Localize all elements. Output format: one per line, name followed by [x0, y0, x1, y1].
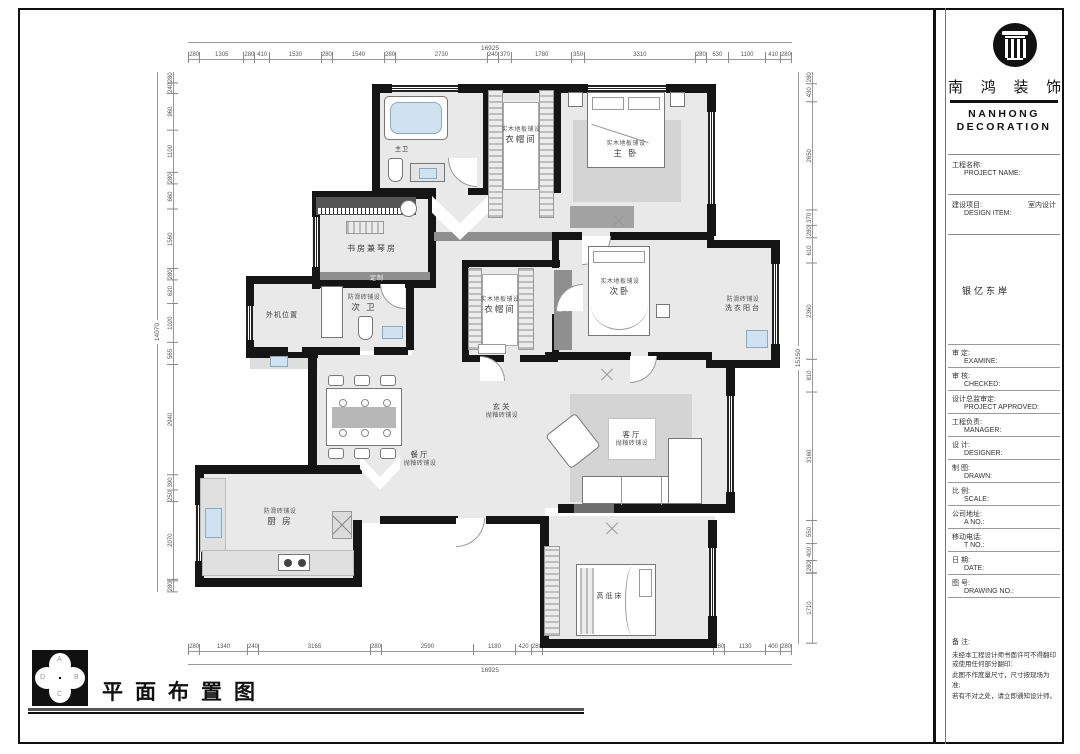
compass-letter-n: A	[57, 656, 62, 663]
light-symbol	[600, 368, 614, 382]
wall-segment	[648, 352, 712, 360]
right-overall-dimension: 15150	[793, 72, 803, 644]
divider	[948, 194, 1060, 195]
wardrobe-hatch	[468, 268, 482, 350]
top-overall-dimension: 16925	[188, 36, 792, 46]
drawing-sheet: 16925 2801305280410153028015402802730240…	[0, 0, 1080, 754]
design-item-label-cn: 建设项目: 室内设计	[952, 200, 1056, 210]
title-block-field-row: 图 号: DRAWING NO.:	[948, 575, 1060, 598]
plate	[361, 399, 369, 407]
logo-column-base	[1007, 58, 1023, 60]
bottom-overall-dimension: 16925	[188, 658, 792, 668]
bed-fold-line	[591, 305, 648, 330]
design-item-label-en: DESIGN ITEM:	[952, 210, 1056, 217]
dining-chair	[328, 448, 344, 459]
logo-column-shaft	[1005, 39, 1026, 58]
nightstand	[568, 92, 583, 107]
wall-segment	[540, 639, 717, 648]
window	[392, 85, 458, 92]
wall-segment	[406, 288, 414, 350]
wall-segment	[380, 516, 458, 524]
custom-cabinet	[434, 232, 552, 241]
wall-segment	[707, 240, 780, 248]
wardrobe-hatch	[488, 90, 503, 218]
design-item-value: 室内设计	[1028, 200, 1056, 210]
master-bed	[587, 92, 665, 168]
round-stool	[400, 200, 417, 217]
floor-ac-unit	[250, 283, 315, 353]
window	[708, 112, 715, 204]
company-rule	[950, 100, 1058, 103]
door-arc	[456, 518, 485, 547]
window	[772, 264, 779, 344]
plate	[383, 399, 391, 407]
remarks-line: 此图不作度量尺寸，尺寸按现场为准;	[952, 671, 1056, 691]
window	[709, 548, 716, 616]
title-block-field-row: 审 核: CHECKED:	[948, 368, 1060, 391]
pillow	[592, 97, 624, 110]
wall-segment	[554, 88, 561, 193]
wall-segment	[462, 260, 560, 267]
cloakroom1-island	[503, 102, 539, 190]
remarks-line: 未经本工程设计师书面许可不得翻印或使用任何部分翻印;	[952, 651, 1056, 671]
title-block-field-row: 日 期: DATE:	[948, 552, 1060, 575]
wall-segment	[520, 355, 558, 362]
dining-table	[326, 388, 402, 446]
wall-segment	[353, 520, 362, 587]
wall-segment	[195, 465, 362, 474]
company-name-en2: DECORATION	[948, 121, 1060, 133]
wall-segment	[708, 616, 717, 648]
logo-column-capital2	[1005, 36, 1025, 38]
wall-segment	[610, 232, 714, 240]
ac-outdoor-unit	[270, 356, 288, 367]
nightstand	[670, 92, 685, 107]
title-block: 南 鸿 装 饰 NANHONG DECORATION 工程名称: PROJECT…	[948, 8, 1060, 744]
burner	[284, 559, 292, 567]
remarks-block: 备 注: 未经本工程设计师书面许可不得翻印或使用任何部分翻印;此图不作度量尺寸，…	[952, 638, 1056, 701]
compass-center-square	[49, 667, 71, 689]
toilet	[388, 158, 403, 182]
light-symbol	[605, 522, 619, 536]
plate	[339, 429, 347, 437]
bed2	[588, 246, 650, 336]
project-name-label-en: PROJECT NAME:	[952, 170, 1021, 177]
table-runner	[332, 407, 396, 428]
wall-segment	[372, 88, 380, 193]
drawing-title-underline	[28, 708, 584, 714]
wardrobe-hatch	[544, 546, 560, 636]
wall-segment	[246, 276, 254, 306]
piano-bench	[346, 221, 384, 234]
light-symbol	[612, 214, 626, 228]
wall-segment	[708, 520, 717, 548]
sink	[419, 168, 437, 179]
shoe-bench	[478, 344, 506, 354]
title-block-separator	[933, 8, 936, 744]
wall-segment	[374, 347, 408, 355]
bed-fold-line	[591, 124, 648, 143]
wardrobe-hatch	[539, 90, 554, 218]
wall-segment	[195, 578, 362, 587]
cloakroom2-island	[482, 274, 518, 346]
shower	[321, 286, 343, 338]
window	[588, 85, 666, 92]
sofa-chaise	[668, 438, 702, 504]
dining-chair	[354, 375, 370, 386]
wardrobe-hatch	[518, 268, 534, 350]
project-name-field: 工程名称: PROJECT NAME:	[952, 160, 1021, 177]
divider	[948, 154, 1060, 155]
washing-machine	[746, 330, 768, 348]
wall-segment	[707, 84, 716, 112]
compass-letter-s: C	[57, 691, 62, 698]
kitchen-sink	[205, 508, 222, 538]
sofa-cushion-line	[621, 477, 622, 505]
left-overall-dimension: 14070	[152, 72, 162, 592]
wall-segment	[246, 276, 318, 284]
nightstand	[656, 304, 670, 318]
title-block-field-row: 制 图: DRAWN:	[948, 460, 1060, 483]
title-block-field-row: 设计总监审定: PROJECT APPROVED:	[948, 391, 1060, 414]
title-block-inner-line	[945, 8, 946, 744]
bunk-bed	[576, 564, 656, 636]
window	[727, 396, 734, 492]
logo-column-capital	[1002, 31, 1028, 35]
sink	[382, 326, 403, 339]
compass-icon: A B C D	[32, 650, 88, 706]
title-block-field-row: 比 例: SCALE:	[948, 483, 1060, 506]
top-dimension-chain: 2801305280410153028015402802730240370178…	[188, 52, 792, 63]
sofa-cushion-line	[661, 477, 662, 505]
right-dimension-chain: 2804302650370280610236081031605504002801…	[806, 72, 817, 644]
flue-shaft	[332, 511, 352, 539]
vanity-counter	[410, 163, 445, 182]
left-dimension-chain: 2802409601100280660156028062010205652940…	[167, 72, 178, 592]
title-block-field-row: 移动电话: T NO.:	[948, 529, 1060, 552]
project-name-label-cn: 工程名称:	[952, 160, 1021, 170]
title-block-field-row: 设 计: DESIGNER:	[948, 437, 1060, 460]
floor-plan: 16925 2801305280410153028015402802730240…	[150, 8, 830, 708]
title-block-field-row: 工程负责: MANAGER:	[948, 414, 1060, 437]
remarks-line: 若有不对之处，请立即通知设计师。	[952, 692, 1056, 702]
wall-segment	[706, 360, 780, 368]
window	[313, 217, 320, 267]
wall-segment	[468, 188, 490, 195]
compass-letter-e: B	[74, 674, 79, 681]
design-item-field: 建设项目: 室内设计 DESIGN ITEM:	[952, 200, 1056, 217]
toilet	[358, 316, 373, 340]
dining-chair	[328, 375, 344, 386]
living-tv-cabinet	[574, 504, 614, 513]
title-block-field-row: 公司地址: A NO.:	[948, 506, 1060, 529]
company-logo-icon	[993, 23, 1037, 67]
wall-segment	[486, 516, 544, 524]
title-block-field-row: 审 定: EXAMINE:	[948, 345, 1060, 368]
drawing-title: 平面布置图	[102, 676, 267, 706]
bathtub	[384, 96, 448, 140]
dining-chair	[380, 448, 396, 459]
plate	[383, 429, 391, 437]
remarks-lines: 未经本工程设计师书面许可不得翻印或使用任何部分翻印;此图不作度量尺寸，尺寸按现场…	[952, 651, 1056, 702]
wall-segment	[372, 188, 436, 195]
title-block-fields: 审 定: EXAMINE: 审 核: CHECKED: 设计总监审定: PROJ…	[948, 344, 1060, 598]
window	[246, 306, 253, 340]
wall-segment	[771, 240, 780, 264]
burner	[298, 559, 306, 567]
wall-segment	[726, 360, 735, 396]
company-name-cn: 南 鸿 装 饰	[948, 76, 1060, 97]
remarks-label: 备 注:	[952, 638, 1056, 649]
pillow	[628, 97, 660, 110]
project-title: 银亿东岸	[962, 284, 1010, 297]
wall-segment	[308, 355, 317, 470]
divider	[948, 234, 1060, 235]
room-label-living: 客厅抛釉砖铺设	[616, 430, 649, 448]
pillow	[593, 251, 645, 263]
plate	[339, 399, 347, 407]
plate	[361, 429, 369, 437]
bunk-ladder	[580, 568, 594, 634]
company-name-en1: NANHONG	[948, 108, 1060, 120]
custom-label: 定制	[362, 273, 392, 282]
bathtub-basin	[390, 102, 442, 134]
stove	[278, 554, 310, 571]
compass-letter-w: D	[40, 674, 45, 681]
living-label-box: 客厅抛釉砖铺设	[608, 418, 656, 460]
dining-chair	[380, 375, 396, 386]
dining-chair	[354, 448, 370, 459]
pillow	[639, 569, 652, 597]
